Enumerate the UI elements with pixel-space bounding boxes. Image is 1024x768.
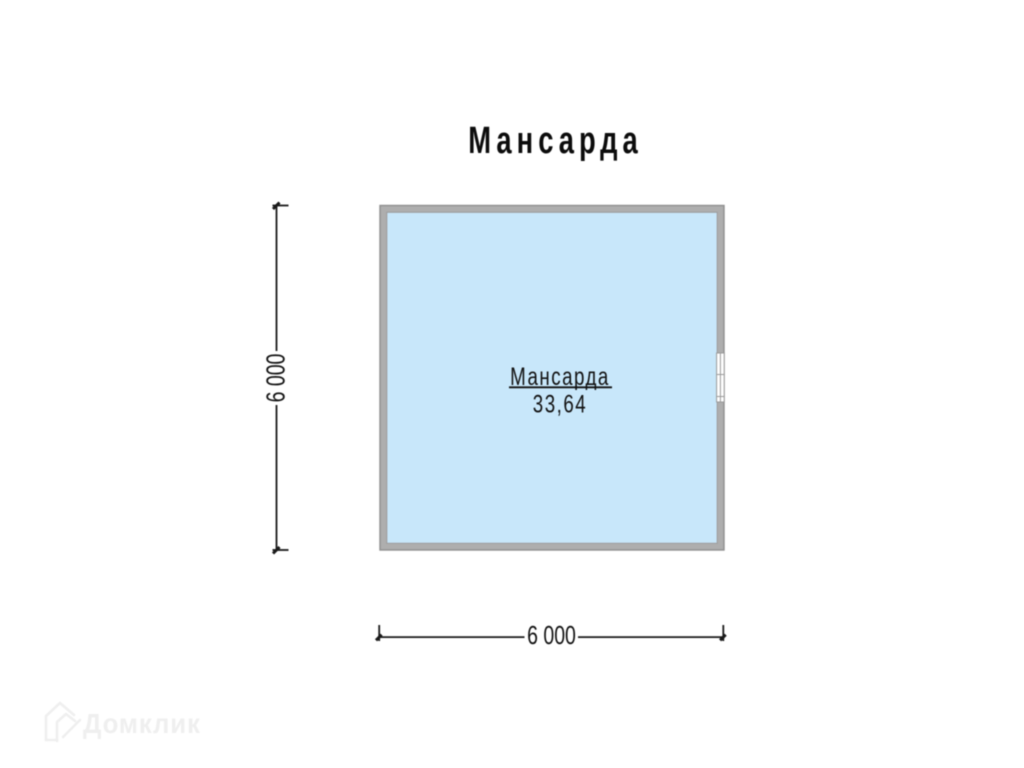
svg-text:Домклик: Домклик	[83, 708, 201, 739]
svg-text:Мансарда: Мансарда	[510, 362, 610, 390]
svg-text:Мансарда: Мансарда	[468, 120, 643, 162]
svg-text:6 000: 6 000	[527, 620, 576, 649]
svg-text:6 000: 6 000	[261, 354, 290, 403]
svg-text:33,64: 33,64	[533, 390, 587, 418]
